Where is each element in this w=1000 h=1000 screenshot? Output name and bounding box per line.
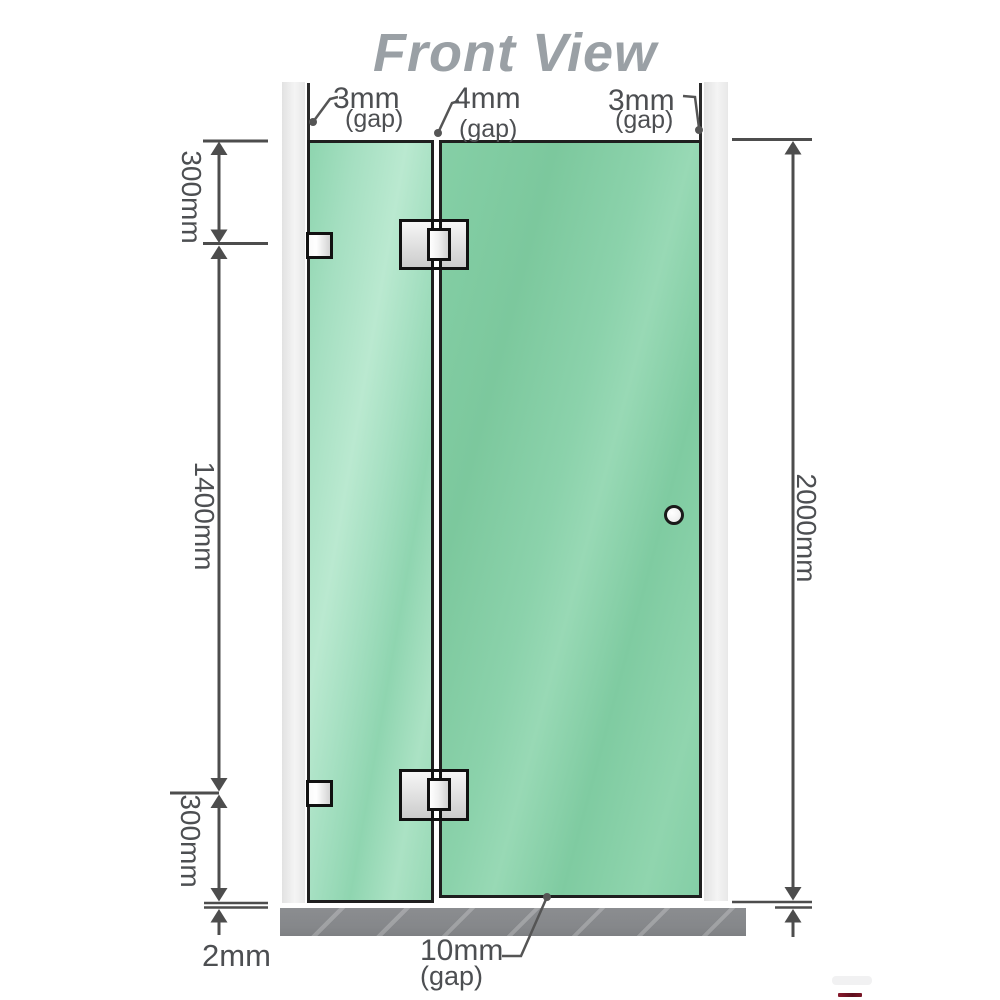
- logo-fragment-red: [838, 993, 862, 997]
- door-glass-panel: [439, 140, 702, 898]
- door-handle-knob: [664, 505, 684, 525]
- gap-label-left-qualifier: (gap): [345, 105, 403, 134]
- glass-hinge-bottom: [399, 769, 469, 821]
- wall-bracket-bottom: [306, 780, 333, 807]
- gap-label-middle-value: 4mm: [454, 82, 521, 116]
- left-opening-edge-line: [307, 83, 310, 141]
- gap-label-right-qualifier: (gap): [615, 106, 673, 135]
- diagram-title: Front View: [320, 22, 710, 86]
- gap-label-middle-qualifier: (gap): [459, 115, 517, 144]
- dim-label-bottom-300: 300mm: [175, 786, 205, 896]
- shower-screen-front-view-diagram: Front View: [0, 0, 1000, 1000]
- floor-base: [280, 908, 746, 936]
- glass-hinge-top: [399, 219, 469, 270]
- right-wall-channel: [704, 82, 728, 901]
- right-opening-edge-line: [699, 83, 702, 141]
- left-wall-channel: [282, 82, 305, 903]
- gap-label-10mm-qualifier: (gap): [420, 961, 483, 992]
- wall-bracket-top: [306, 232, 333, 259]
- hinge-gap-slot: [431, 811, 442, 818]
- dim-label-1400: 1400mm: [189, 456, 219, 576]
- hinge-tongue: [427, 778, 451, 811]
- dim-label-2mm: 2mm: [202, 938, 271, 974]
- hinge-tongue: [427, 228, 451, 261]
- hinge-gap-slot: [431, 260, 442, 267]
- logo-fragment-smudge: [832, 976, 872, 985]
- dim-label-top-300: 300mm: [176, 142, 206, 252]
- dim-label-2000: 2000mm: [791, 466, 821, 590]
